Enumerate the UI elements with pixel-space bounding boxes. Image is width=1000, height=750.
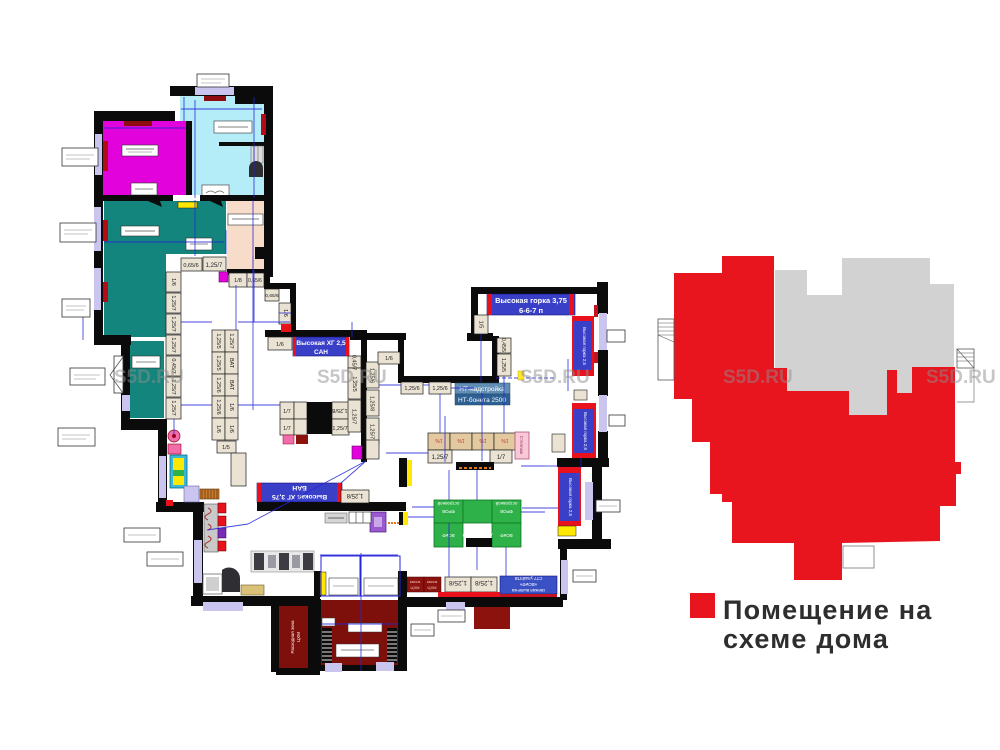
svg-text:1,25/6: 1,25/6 [432, 386, 447, 392]
svg-text:S5D.RU: S5D.RU [114, 367, 184, 388]
svg-text:ЦХМ: ЦХМ [428, 585, 437, 590]
svg-text:островной: островной [495, 501, 517, 507]
svg-text:ЦХМ: ЦХМ [296, 632, 301, 642]
svg-text:ФРОВ: ФРОВ [442, 509, 455, 514]
svg-text:1%: 1% [435, 437, 443, 443]
svg-text:1/8: 1/8 [234, 278, 242, 284]
svg-text:Высокая горка 2,5: Высокая горка 2,5 [582, 327, 587, 365]
svg-text:касса: касса [427, 579, 438, 584]
svg-text:0,65/6: 0,65/6 [265, 293, 279, 299]
svg-text:1,25/5: 1,25/5 [215, 333, 221, 348]
svg-text:ВАТ: ВАТ [228, 380, 234, 391]
svg-text:0,65/6: 0,65/6 [183, 263, 198, 269]
svg-text:САН: САН [314, 349, 328, 356]
svg-text:1/6: 1/6 [170, 278, 176, 286]
svg-text:1/6: 1/6 [228, 403, 234, 411]
svg-text:1/6: 1/6 [228, 425, 234, 433]
svg-text:1,25/7: 1,25/7 [369, 424, 375, 439]
svg-text:1,25/7: 1,25/7 [432, 455, 449, 461]
svg-text:«ВОиФ»: «ВОиФ» [519, 582, 537, 587]
svg-text:касса: касса [410, 579, 421, 584]
svg-text:Высокая горка 2,5: Высокая горка 2,5 [568, 478, 573, 516]
svg-text:S5D.RU: S5D.RU [317, 367, 387, 388]
svg-text:1/7: 1/7 [497, 455, 506, 461]
svg-text:1%: 1% [501, 437, 509, 443]
svg-text:1,25/7: 1,25/7 [206, 263, 223, 269]
svg-text:НТ-надстройка: НТ-надстройка [459, 385, 505, 393]
svg-text:1/6: 1/6 [215, 425, 221, 433]
svg-text:1/5: 1/5 [222, 445, 230, 451]
svg-text:1,25/8: 1,25/8 [369, 396, 375, 411]
svg-text:1,25/6: 1,25/6 [215, 399, 221, 414]
svg-text:1,25/8: 1,25/8 [449, 579, 467, 586]
svg-text:1,25/6: 1,25/6 [215, 377, 221, 392]
svg-text:S5D.RU: S5D.RU [520, 367, 590, 388]
svg-text:0,65/6: 0,65/6 [248, 278, 262, 284]
svg-text:S5D.RU: S5D.RU [926, 367, 996, 388]
svg-text:1,25/6: 1,25/6 [404, 386, 419, 392]
svg-text:1,25/5: 1,25/5 [215, 355, 221, 370]
svg-text:1,25/5: 1,25/5 [500, 358, 506, 372]
svg-text:1%: 1% [457, 437, 465, 443]
svg-text:1,25/7: 1,25/7 [351, 409, 357, 424]
svg-text:Помещение на: Помещение на [723, 595, 932, 625]
svg-text:свежая выпечка: свежая выпечка [511, 588, 545, 593]
svg-text:схеме дома: схеме дома [723, 624, 889, 654]
svg-text:Расходная зона: Расходная зона [290, 620, 295, 654]
svg-text:Высокая горка 2,5: Высокая горка 2,5 [583, 412, 588, 450]
svg-text:островной: островной [437, 501, 459, 507]
svg-text:СТ7 улайтПВ: СТ7 улайтПВ [515, 576, 543, 582]
svg-text:1,25/7: 1,25/7 [170, 316, 176, 331]
svg-text:0,45/5: 0,45/5 [500, 338, 506, 352]
svg-text:1/7: 1/7 [283, 426, 291, 432]
svg-text:ВОиФ: ВОиФ [500, 533, 513, 538]
svg-text:1,25/7: 1,25/7 [170, 295, 176, 310]
svg-text:1/6: 1/6 [276, 342, 284, 348]
svg-text:6-6-7 п: 6-6-7 п [519, 306, 543, 315]
svg-text:Высокая ХГ 2,5: Высокая ХГ 2,5 [296, 340, 346, 347]
svg-text:1,25/7: 1,25/7 [228, 333, 234, 348]
svg-text:Высокая горка 3,75: Высокая горка 3,75 [495, 296, 567, 305]
svg-text:1,25/7: 1,25/7 [332, 426, 347, 432]
svg-text:1,25/8: 1,25/8 [346, 492, 363, 498]
svg-text:1/7: 1/7 [283, 409, 291, 415]
svg-text:1/6: 1/6 [385, 356, 393, 362]
svg-text:БАН: БАН [292, 484, 307, 491]
svg-text:длинабонусов: длинабонусов [462, 533, 492, 538]
svg-text:1,25/8: 1,25/8 [475, 579, 493, 586]
svg-text:1,25/7: 1,25/7 [170, 337, 176, 352]
svg-text:S5D.RU: S5D.RU [723, 367, 793, 388]
svg-text:1%: 1% [479, 437, 487, 443]
svg-text:ФРОВ: ФРОВ [500, 509, 513, 514]
svg-text:1,25/8: 1,25/8 [332, 407, 347, 413]
svg-text:ВОиФ: ВОиФ [442, 533, 455, 538]
svg-text:1/5: 1/5 [478, 321, 484, 329]
svg-text:ВАТ: ВАТ [228, 358, 234, 369]
svg-text:1,25/7: 1,25/7 [170, 400, 176, 415]
svg-text:ЦХМ: ЦХМ [411, 585, 420, 590]
svg-text:Стеллаж: Стеллаж [519, 436, 524, 454]
